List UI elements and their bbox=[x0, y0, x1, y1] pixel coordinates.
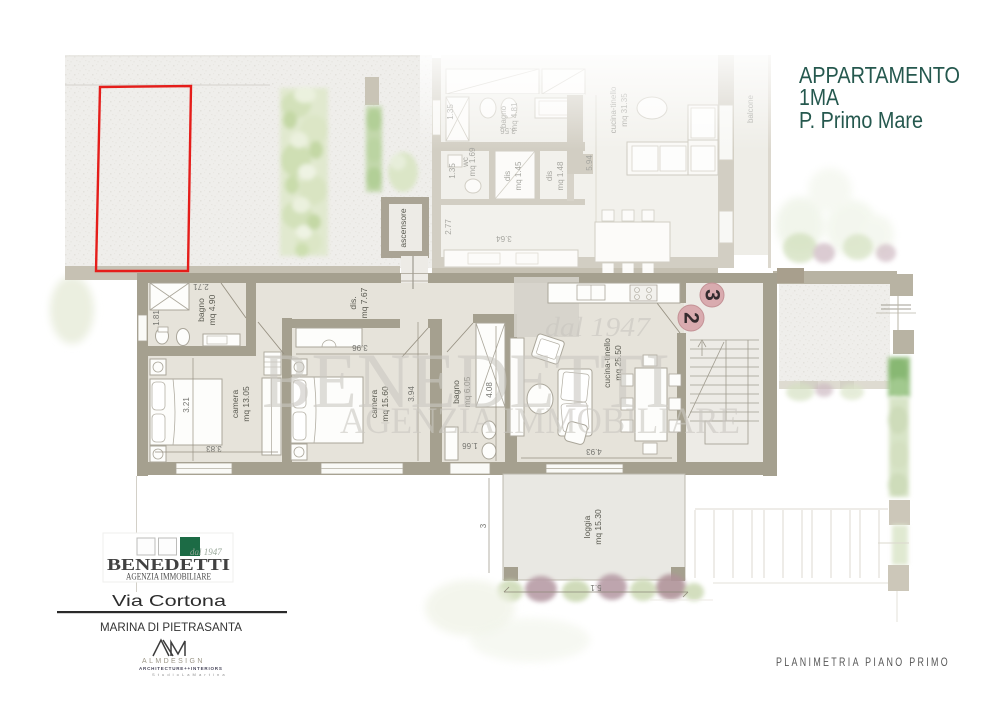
svg-text:mq 4.90: mq 4.90 bbox=[207, 294, 217, 325]
svg-text:AGENZIA IMMOBILIARE: AGENZIA IMMOBILIARE bbox=[126, 572, 211, 582]
svg-text:ascensore: ascensore bbox=[398, 208, 408, 247]
svg-text:AGENZIA IMMOBILIARE: AGENZIA IMMOBILIARE bbox=[340, 401, 740, 442]
svg-text:mq 13.05: mq 13.05 bbox=[241, 386, 251, 422]
svg-text:1.66: 1.66 bbox=[462, 441, 478, 450]
svg-text:ARCHITECTURE++INTERIORS: ARCHITECTURE++INTERIORS bbox=[139, 666, 223, 671]
svg-text:5.1: 5.1 bbox=[590, 583, 602, 592]
svg-text:mq 15.30: mq 15.30 bbox=[593, 509, 603, 545]
svg-text:3.21: 3.21 bbox=[182, 397, 191, 413]
svg-text:loggia: loggia bbox=[582, 515, 592, 538]
svg-text:S t u d i o L a M a r t i n: S t u d i o L a M a r t i n a bbox=[152, 672, 226, 677]
svg-text:MARINA DI PIETRASANTA: MARINA DI PIETRASANTA bbox=[100, 622, 242, 634]
svg-text:2.71: 2.71 bbox=[193, 282, 209, 291]
svg-text:1.81: 1.81 bbox=[152, 310, 161, 326]
svg-text:2: 2 bbox=[680, 312, 703, 324]
svg-text:bagno: bagno bbox=[196, 298, 206, 322]
svg-text:mq 7.67: mq 7.67 bbox=[359, 287, 369, 318]
svg-text:ALMDESIGN: ALMDESIGN bbox=[142, 658, 205, 665]
svg-text:3: 3 bbox=[701, 289, 724, 301]
svg-text:P. Primo Mare: P. Primo Mare bbox=[799, 107, 923, 133]
svg-text:3: 3 bbox=[479, 523, 488, 528]
svg-text:4.93: 4.93 bbox=[586, 447, 602, 456]
svg-text:Via Cortona: Via Cortona bbox=[112, 593, 226, 610]
svg-text:PLANIMETRIA PIANO PRIMO: PLANIMETRIA PIANO PRIMO bbox=[776, 657, 950, 669]
svg-text:dis.: dis. bbox=[348, 296, 358, 309]
svg-text:camera: camera bbox=[230, 390, 240, 419]
